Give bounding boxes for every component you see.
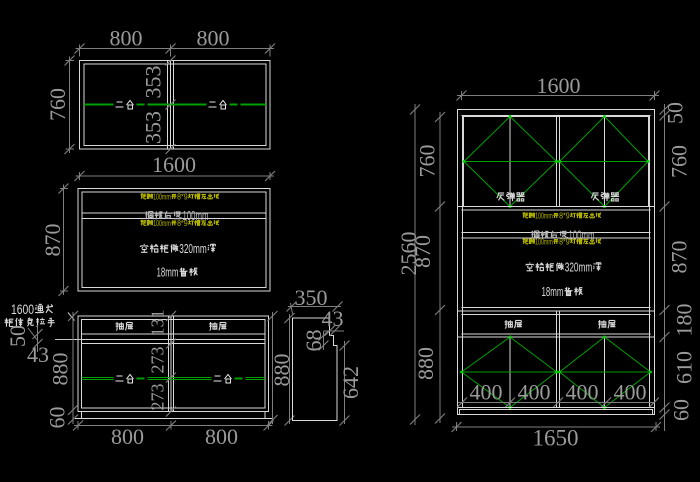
- svg-text:68: 68: [301, 330, 326, 352]
- svg-text:353: 353: [140, 111, 165, 144]
- svg-text:180: 180: [671, 304, 696, 337]
- svg-text:800: 800: [111, 424, 144, 449]
- svg-text:60: 60: [668, 399, 693, 421]
- svg-text:800: 800: [197, 26, 230, 51]
- svg-text:880: 880: [47, 353, 72, 386]
- svg-text:8*9: 8*9: [559, 236, 570, 246]
- svg-text:400: 400: [518, 380, 551, 405]
- svg-text:400: 400: [566, 380, 599, 405]
- svg-text:50: 50: [662, 102, 687, 124]
- svg-text:353: 353: [140, 66, 165, 99]
- svg-text:43: 43: [27, 342, 49, 367]
- svg-text:18mm: 18mm: [542, 284, 564, 299]
- svg-text:1600: 1600: [537, 73, 581, 98]
- svg-text:320mm: 320mm: [565, 260, 593, 275]
- svg-text:100mm: 100mm: [535, 210, 553, 220]
- svg-text:800: 800: [205, 424, 238, 449]
- svg-text:100mm: 100mm: [153, 218, 171, 228]
- svg-text:800: 800: [110, 26, 143, 51]
- svg-text:880: 880: [269, 354, 294, 387]
- svg-text:60: 60: [44, 407, 69, 429]
- svg-text:400: 400: [614, 380, 647, 405]
- svg-text:610: 610: [671, 351, 696, 384]
- svg-text:870: 870: [410, 235, 435, 268]
- svg-text:18mm: 18mm: [157, 265, 179, 280]
- svg-text:870: 870: [40, 224, 65, 257]
- svg-text:8*9: 8*9: [177, 218, 188, 228]
- svg-text:642: 642: [338, 366, 363, 399]
- svg-text:870: 870: [666, 241, 691, 274]
- svg-text:1600: 1600: [152, 152, 196, 177]
- svg-text:760: 760: [414, 145, 439, 178]
- svg-text:8*9: 8*9: [559, 210, 570, 220]
- svg-text:273: 273: [147, 384, 167, 411]
- svg-text:880: 880: [413, 347, 438, 380]
- svg-text:760: 760: [45, 88, 70, 121]
- svg-text:8*9: 8*9: [177, 191, 188, 201]
- svg-text:320mm: 320mm: [179, 241, 207, 256]
- svg-text:131: 131: [147, 310, 167, 337]
- svg-text:1600: 1600: [11, 301, 34, 317]
- svg-text:760: 760: [666, 145, 691, 178]
- svg-text:100mm: 100mm: [535, 236, 553, 246]
- svg-text:43: 43: [322, 306, 344, 331]
- svg-text:1650: 1650: [533, 426, 579, 451]
- svg-text:400: 400: [470, 380, 503, 405]
- svg-text:273: 273: [147, 347, 167, 374]
- svg-text:100mm: 100mm: [153, 191, 171, 201]
